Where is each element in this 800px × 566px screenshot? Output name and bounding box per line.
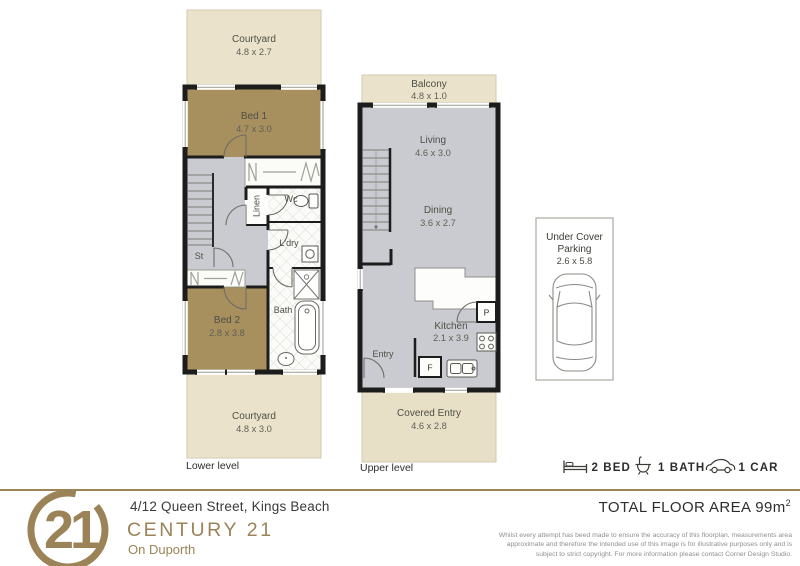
pantry-label: P <box>484 308 490 318</box>
room-label-dining: Dining <box>424 205 452 216</box>
room-label-kitchen: Kitchen <box>434 321 467 332</box>
room-dims-covered-entry: 4.6 x 2.8 <box>411 421 447 431</box>
parking-title-line2: Parking <box>558 244 592 255</box>
room-label-entry: Entry <box>372 349 394 359</box>
room-label-linen: Linen <box>252 195 262 217</box>
room-label-bed1: Bed 1 <box>241 111 268 122</box>
legend: 2 BED 1 BATH 1 CAR <box>564 457 779 475</box>
total-floor-area-text: TOTAL FLOOR AREA 99m <box>599 499 786 516</box>
car-count-label: 1 CAR <box>739 462 779 474</box>
room-dims-bed2: 2.8 x 3.8 <box>209 328 245 338</box>
brand-name: CENTURY 21 <box>127 519 274 542</box>
room-dims-kitchen: 2.1 x 3.9 <box>433 333 469 343</box>
sink-icon <box>447 360 477 377</box>
stove-icon <box>477 333 496 351</box>
hallway-area <box>187 157 245 287</box>
room-dims-balcony: 4.8 x 1.0 <box>411 91 447 101</box>
bathtub-icon <box>295 301 319 354</box>
room-label-living: Living <box>420 135 446 146</box>
room-label-bed2: Bed 2 <box>214 315 241 326</box>
upper-level-label: Upper level <box>360 462 413 474</box>
lower-level-plan: Courtyard 4.8 x 2.7 Bed 1 4.7 x 3.0 Line… <box>183 10 326 472</box>
parking-dims: 2.6 x 5.8 <box>557 256 593 266</box>
room-label-courtyard-top: Courtyard <box>232 34 276 45</box>
room-label-storage: St <box>195 251 204 261</box>
bed-icon <box>564 461 587 474</box>
logo-number: 21 <box>44 500 99 560</box>
room-dims-bed1: 4.7 x 3.0 <box>236 124 272 134</box>
washer-icon <box>302 246 318 262</box>
century21-logo: 21 <box>18 486 124 566</box>
bath-count-label: 1 BATH <box>658 462 705 474</box>
room-dims-dining: 3.6 x 2.7 <box>420 218 456 228</box>
total-floor-area-exponent: 2 <box>786 498 791 508</box>
disclaimer-line: Whilst every attempt has beed made to en… <box>499 531 792 540</box>
total-floor-area: TOTAL FLOOR AREA 99m2 <box>599 498 791 516</box>
room-label-covered-entry: Covered Entry <box>397 408 461 419</box>
room-bed1 <box>187 89 321 157</box>
upper-level-plan: P F Balcony 4.8 x 1.0 Living 4.6 x 3.0 D… <box>358 75 498 474</box>
room-label-courtyard-bottom: Courtyard <box>232 411 276 422</box>
disclaimer-line: approximate and therefore the intended u… <box>499 540 792 549</box>
office-name: On Duporth <box>128 542 195 557</box>
shower-icon <box>294 270 319 299</box>
floorplan-canvas: Courtyard 4.8 x 2.7 Bed 1 4.7 x 3.0 Line… <box>0 0 800 490</box>
hallway-area <box>245 225 268 287</box>
bath-icon <box>636 457 652 475</box>
room-label-balcony: Balcony <box>411 79 447 90</box>
parking-title-line1: Under Cover <box>546 232 603 243</box>
room-label-wc: Wc <box>285 194 298 204</box>
room-dims-courtyard-top: 4.8 x 2.7 <box>236 47 272 57</box>
room-label-bath: Bath <box>274 305 293 315</box>
lower-level-label: Lower level <box>186 460 239 472</box>
basin-icon <box>278 353 294 366</box>
room-dims-courtyard-bottom: 4.8 x 3.0 <box>236 424 272 434</box>
room-dims-living: 4.6 x 3.0 <box>415 148 451 158</box>
floorplan-page: Courtyard 4.8 x 2.7 Bed 1 4.7 x 3.0 Line… <box>0 0 800 566</box>
disclaimer: Whilst every attempt has beed made to en… <box>499 531 792 559</box>
parking-diagram: Under Cover Parking 2.6 x 5.8 <box>536 218 613 380</box>
bed-count-label: 2 BED <box>592 462 631 474</box>
room-label-laundry: L'dry <box>279 238 299 248</box>
fridge-label: F <box>427 363 432 373</box>
property-address: 4/12 Queen Street, Kings Beach <box>130 499 330 514</box>
car-icon <box>706 460 734 473</box>
disclaimer-line: subject to strict copyright. For more in… <box>499 550 792 559</box>
